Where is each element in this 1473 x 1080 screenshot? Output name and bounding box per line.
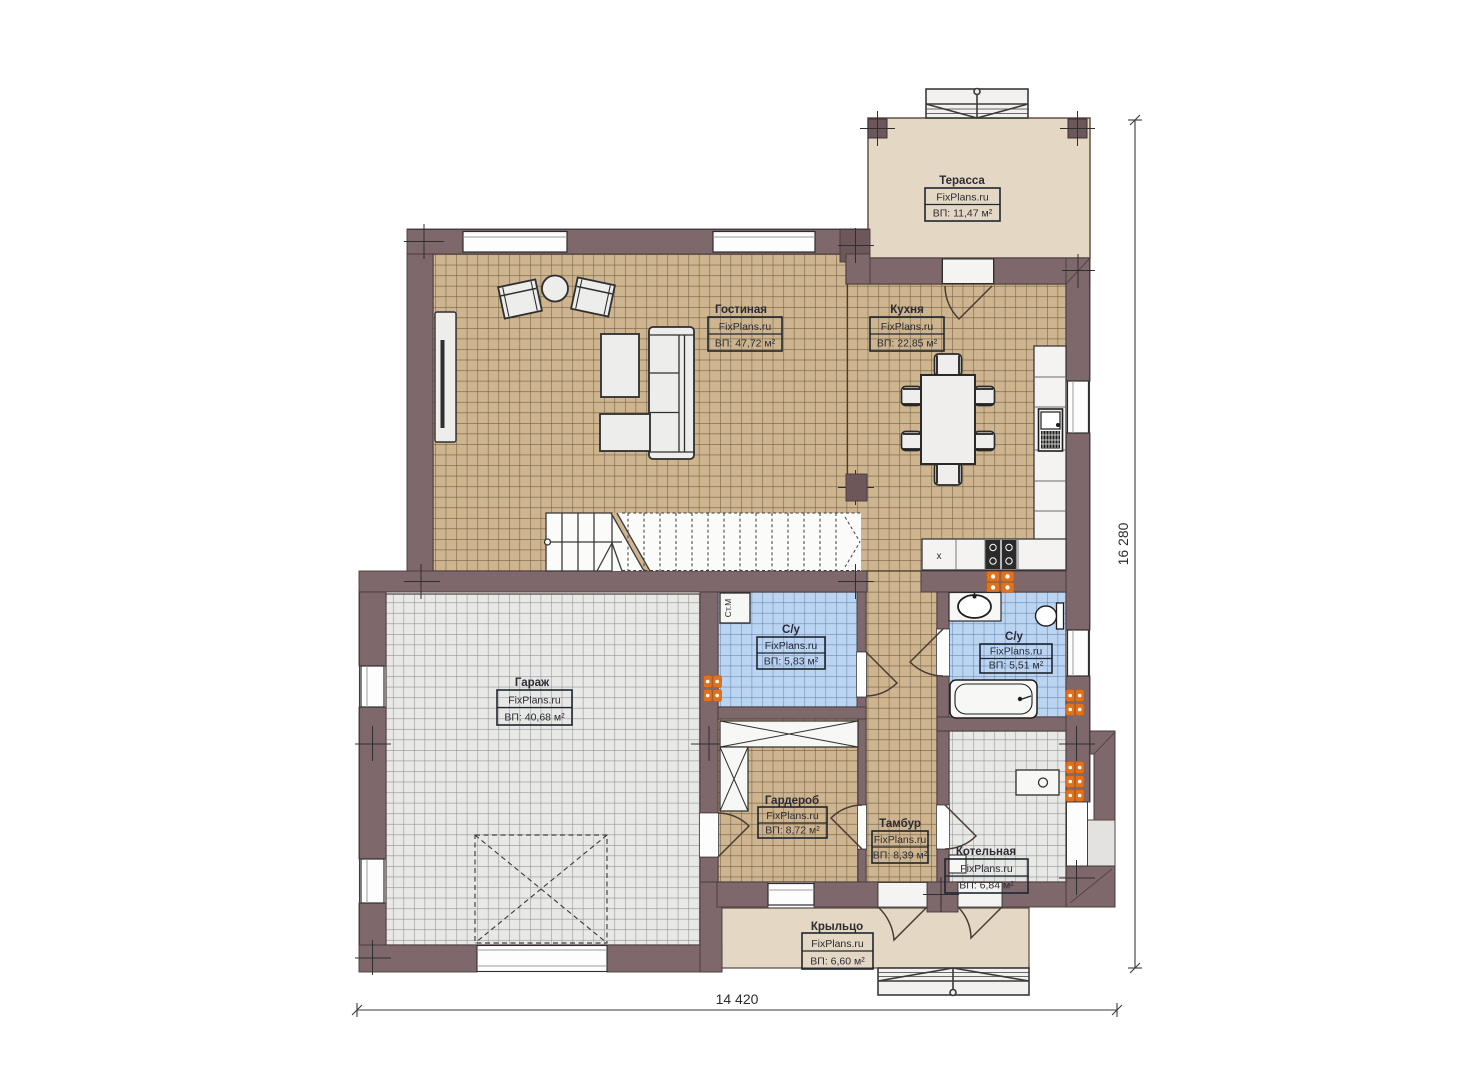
svg-text:Терасса: Терасса [939, 175, 985, 187]
svg-text:ВП: 6,84 м²: ВП: 6,84 м² [959, 880, 1014, 892]
svg-text:FixPlans.ru: FixPlans.ru [881, 321, 934, 333]
svg-text:ВП: 5,51 м²: ВП: 5,51 м² [989, 660, 1044, 672]
svg-text:FixPlans.ru: FixPlans.ru [719, 321, 772, 333]
svg-text:ВП: 40,68 м²: ВП: 40,68 м² [504, 712, 565, 724]
svg-text:Гардероб: Гардероб [765, 795, 819, 807]
svg-text:ВП: 8,39 м²: ВП: 8,39 м² [873, 850, 928, 862]
svg-text:ВП: 47,72 м²: ВП: 47,72 м² [715, 338, 776, 350]
svg-text:FixPlans.ru: FixPlans.ru [990, 646, 1043, 658]
svg-text:14 420: 14 420 [716, 991, 759, 1007]
svg-text:Ст.М: Ст.М [723, 599, 733, 618]
svg-text:FixPlans.ru: FixPlans.ru [766, 810, 819, 822]
svg-text:Котельная: Котельная [956, 846, 1016, 858]
svg-text:FixPlans.ru: FixPlans.ru [960, 863, 1013, 875]
svg-text:FixPlans.ru: FixPlans.ru [508, 695, 561, 707]
svg-text:Крыльцо: Крыльцо [811, 921, 863, 933]
svg-text:FixPlans.ru: FixPlans.ru [936, 192, 989, 204]
svg-text:ВП: 5,83 м²: ВП: 5,83 м² [764, 656, 819, 668]
svg-text:Гараж: Гараж [515, 677, 550, 689]
svg-text:Тамбур: Тамбур [879, 818, 921, 830]
svg-text:ВП: 8,72 м²: ВП: 8,72 м² [765, 825, 820, 837]
svg-text:Кухня: Кухня [890, 304, 924, 316]
svg-text:ВП: 22,85 м²: ВП: 22,85 м² [877, 338, 938, 350]
svg-text:ВП: 6,60 м²: ВП: 6,60 м² [810, 956, 865, 968]
svg-text:С/у: С/у [1005, 631, 1024, 643]
svg-text:FixPlans.ru: FixPlans.ru [874, 834, 927, 846]
svg-text:FixPlans.ru: FixPlans.ru [765, 640, 818, 652]
svg-text:FixPlans.ru: FixPlans.ru [811, 938, 864, 950]
svg-text:x: x [937, 551, 942, 562]
svg-text:ВП: 11,47 м²: ВП: 11,47 м² [933, 208, 993, 220]
svg-text:Гостиная: Гостиная [715, 304, 767, 316]
svg-text:С/у: С/у [782, 624, 801, 636]
svg-text:16 280: 16 280 [1115, 522, 1131, 565]
